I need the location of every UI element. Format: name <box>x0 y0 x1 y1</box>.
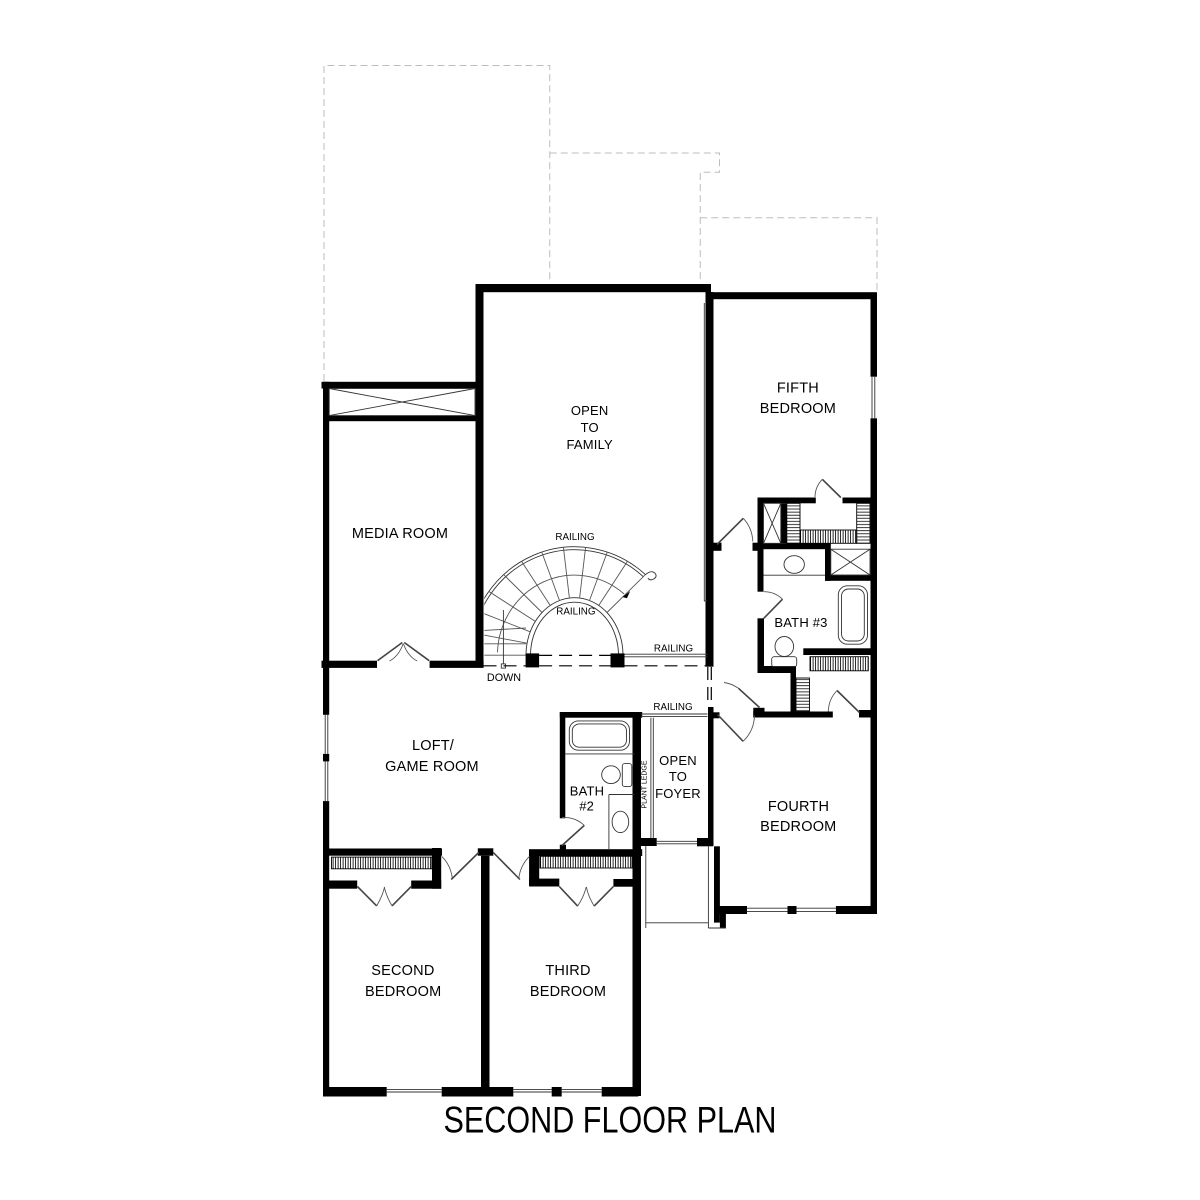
svg-text:BEDROOM: BEDROOM <box>760 401 836 417</box>
svg-text:FOURTH: FOURTH <box>768 799 829 815</box>
svg-text:BATH: BATH <box>570 784 605 799</box>
svg-text:TO: TO <box>669 769 687 784</box>
svg-text:RAILING: RAILING <box>653 702 692 713</box>
svg-text:RAILING: RAILING <box>556 606 595 617</box>
svg-text:FOYER: FOYER <box>655 786 701 801</box>
svg-text:DOWN: DOWN <box>487 672 521 684</box>
svg-text:BEDROOM: BEDROOM <box>365 984 441 1000</box>
svg-text:THIRD: THIRD <box>545 963 590 979</box>
svg-text:#2: #2 <box>579 799 594 814</box>
svg-text:OPEN: OPEN <box>659 753 697 768</box>
svg-text:LOFT/: LOFT/ <box>412 738 455 754</box>
svg-text:OPEN: OPEN <box>571 403 609 418</box>
svg-text:BATH #3: BATH #3 <box>774 615 827 630</box>
svg-text:MEDIA ROOM: MEDIA ROOM <box>352 526 448 542</box>
svg-text:GAME ROOM: GAME ROOM <box>385 759 479 775</box>
svg-text:BEDROOM: BEDROOM <box>760 819 836 835</box>
svg-text:RAILING: RAILING <box>555 532 594 543</box>
svg-text:FIFTH: FIFTH <box>777 381 819 397</box>
svg-text:SECOND: SECOND <box>371 963 434 979</box>
svg-text:TO: TO <box>581 420 599 435</box>
svg-text:SECOND FLOOR PLAN: SECOND FLOOR PLAN <box>444 1100 777 1141</box>
svg-text:PLANT LEDGE: PLANT LEDGE <box>642 760 649 808</box>
svg-text:RAILING: RAILING <box>654 644 693 655</box>
svg-text:BEDROOM: BEDROOM <box>530 984 606 1000</box>
svg-text:FAMILY: FAMILY <box>566 437 613 452</box>
